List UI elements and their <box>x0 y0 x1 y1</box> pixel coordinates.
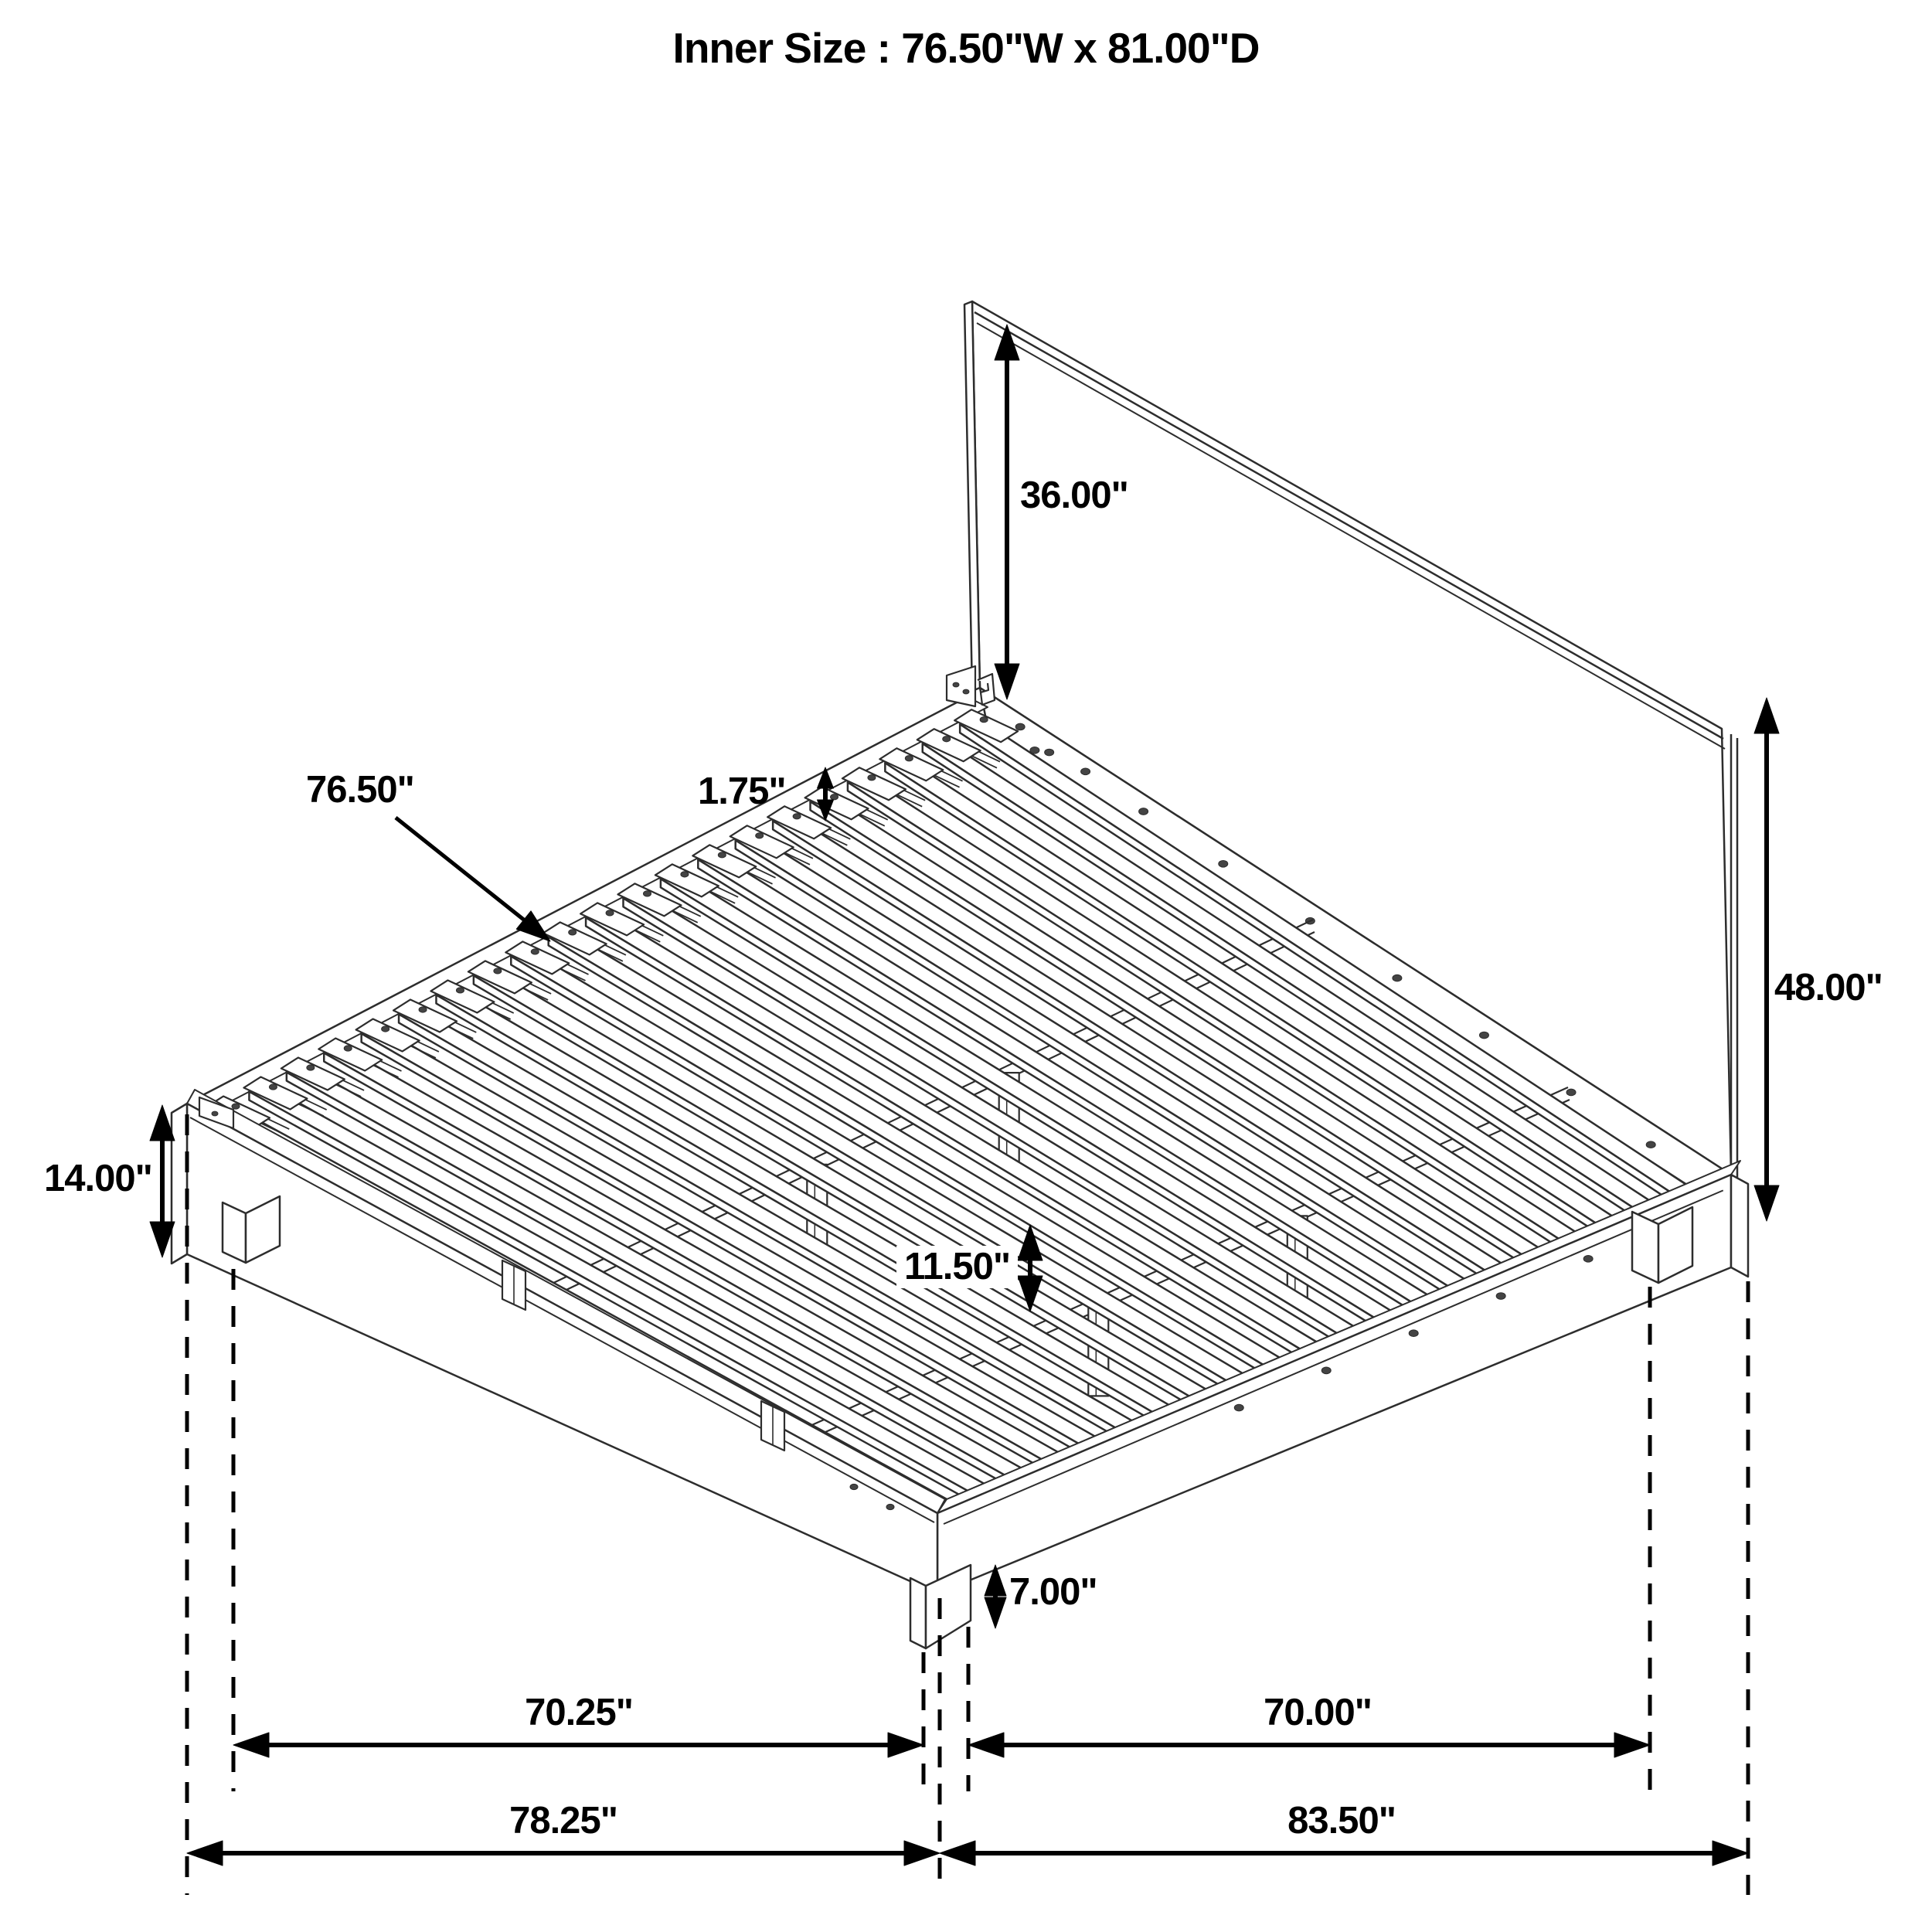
dim-label-slat-length: 76.50" <box>306 771 414 809</box>
dim-label-front-overall: 78.25" <box>509 1802 617 1840</box>
page-title: Inner Size : 76.50"W x 81.00"D <box>0 23 1932 73</box>
dim-label-under-clearance: 11.50" <box>896 1246 1018 1288</box>
dim-label-headboard-total-height: 48.00" <box>1774 969 1883 1007</box>
dim-label-slat-thickness: 1.75" <box>698 773 786 811</box>
dim-label-rail-height: 14.00" <box>44 1160 152 1198</box>
dim-label-right-leg-span: 70.00" <box>1264 1694 1372 1732</box>
dim-label-headboard-above-deck: 36.00" <box>1020 477 1128 515</box>
dim-label-front-leg-span: 70.25" <box>525 1694 633 1732</box>
diagram-page: Inner Size : 76.50"W x 81.00"D 36.00" 48… <box>0 0 1932 1932</box>
dim-label-right-overall: 83.50" <box>1287 1802 1396 1840</box>
dim-label-leg-height: 7.00" <box>1009 1573 1097 1611</box>
bed-isometric-drawing <box>0 0 1932 1932</box>
